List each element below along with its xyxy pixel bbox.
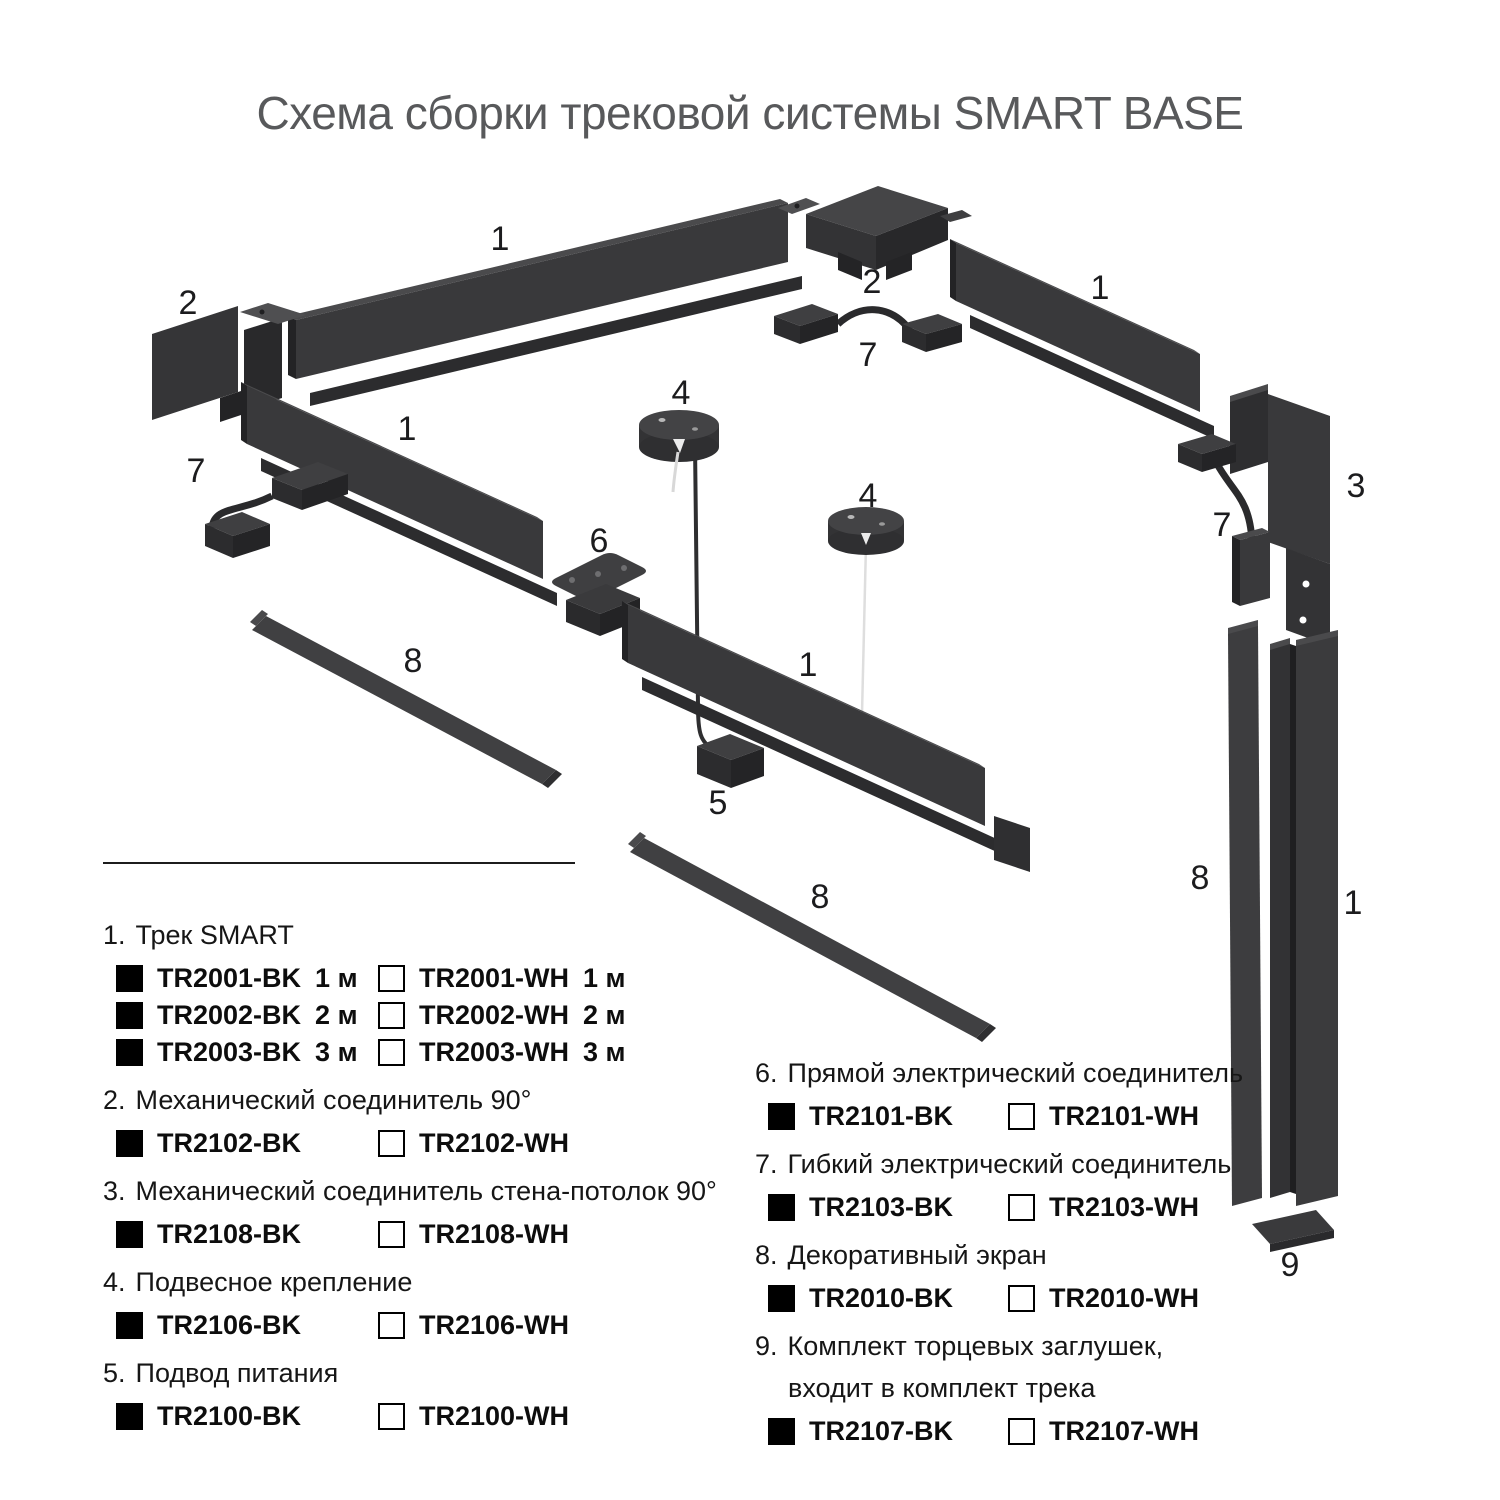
legend-item-wall-ceiling-connector: 3.Механический соединитель стена-потолок… [103, 1174, 688, 1253]
white-color-swatch [378, 1039, 405, 1066]
black-color-swatch [116, 1002, 143, 1029]
product-code-wh: TR2108-WH [419, 1219, 569, 1250]
black-color-swatch [116, 1130, 143, 1157]
black-color-swatch [768, 1418, 795, 1445]
black-color-swatch [116, 1221, 143, 1248]
product-code-bk: TR2003-BK [157, 1037, 301, 1068]
legend-item-title: 8.Декоративный экран [755, 1238, 1255, 1272]
product-code-wh: TR2100-WH [419, 1401, 569, 1432]
product-code-bk: TR2101-BK [809, 1101, 953, 1132]
product-code-bk: TR2001-BK [157, 963, 301, 994]
part-number-label: 6 [590, 522, 609, 560]
product-code-bk: TR2106-BK [157, 1310, 301, 1341]
legend-item-title-line2: входит в комплект трека [788, 1371, 1255, 1405]
product-code-wh: TR2103-WH [1049, 1192, 1199, 1223]
legend-item-title: 2.Механический соединитель 90° [103, 1083, 688, 1117]
black-color-swatch [116, 965, 143, 992]
part-number-label: 7 [187, 452, 206, 490]
product-row: TR2001-BK1 м TR2001-WH1 м [103, 960, 688, 997]
track-right-diagonal [950, 239, 1214, 439]
decorative-screen-left [250, 610, 562, 788]
product-row: TR2003-BK3 м TR2003-WH3 м [103, 1034, 688, 1071]
legend-item-title: 3.Механический соединитель стена-потолок… [103, 1174, 688, 1208]
product-row: TR2108-BK TR2108-WH [103, 1216, 688, 1253]
product-code-wh: TR2102-WH [419, 1128, 569, 1159]
product-code-wh: TR2001-WH [419, 963, 569, 994]
black-color-swatch [116, 1312, 143, 1339]
legend-item-straight-connector: 6.Прямой электрический соединитель TR210… [755, 1056, 1255, 1135]
product-row: TR2103-BK TR2103-WH [755, 1189, 1255, 1226]
product-code-wh: TR2010-WH [1049, 1283, 1199, 1314]
white-color-swatch [378, 1403, 405, 1430]
product-row: TR2010-BK TR2010-WH [755, 1280, 1255, 1317]
black-color-swatch [768, 1103, 795, 1130]
part-number-label: 1 [799, 646, 818, 684]
product-row: TR2100-BK TR2100-WH [103, 1398, 688, 1435]
product-row: TR2002-BK2 м TR2002-WH2 м [103, 997, 688, 1034]
part-number-label: 2 [863, 263, 882, 301]
divider-line [103, 862, 575, 864]
product-code-bk: TR2107-BK [809, 1416, 953, 1447]
part-number-label: 1 [1344, 884, 1363, 922]
product-row: TR2101-BK TR2101-WH [755, 1098, 1255, 1135]
length-label: 2 м [315, 1000, 358, 1031]
part-number-label: 4 [859, 477, 878, 515]
white-color-swatch [378, 1002, 405, 1029]
white-color-swatch [1008, 1418, 1035, 1445]
product-row: TR2102-BK TR2102-WH [103, 1125, 688, 1162]
legend-item-flex-connector: 7.Гибкий электрический соединитель TR210… [755, 1147, 1255, 1226]
part-number-label: 1 [398, 410, 417, 448]
length-label: 2 м [583, 1000, 626, 1031]
legend-item-title: 4.Подвесное крепление [103, 1265, 688, 1299]
legend-left-column: 1.Трек SMART TR2001-BK1 м TR2001-WH1 м T… [103, 862, 688, 1447]
length-label: 3 м [583, 1037, 626, 1068]
legend-right-column: 6.Прямой электрический соединитель TR210… [755, 1056, 1255, 1462]
part-number-label: 3 [1347, 467, 1366, 505]
part-number-label: 5 [709, 784, 728, 822]
part-number-label: 8 [404, 642, 423, 680]
black-color-swatch [116, 1403, 143, 1430]
legend-item-suspension: 4.Подвесное крепление TR2106-BK TR2106-W… [103, 1265, 688, 1344]
white-color-swatch [378, 1221, 405, 1248]
product-code-bk: TR2010-BK [809, 1283, 953, 1314]
white-color-swatch [1008, 1103, 1035, 1130]
legend-item-title: 6.Прямой электрический соединитель [755, 1056, 1255, 1090]
legend-item-title: 5.Подвод питания [103, 1356, 688, 1390]
legend-item-end-caps: 9.Комплект торцевых заглушек, входит в к… [755, 1329, 1255, 1450]
white-color-swatch [378, 1130, 405, 1157]
legend-item-power-feed: 5.Подвод питания TR2100-BK TR2100-WH [103, 1356, 688, 1435]
part-number-label: 4 [672, 374, 691, 412]
black-color-swatch [116, 1039, 143, 1066]
part-number-label: 1 [491, 220, 510, 258]
part-number-label: 8 [811, 878, 830, 916]
white-color-swatch [1008, 1285, 1035, 1312]
product-code-wh: TR2003-WH [419, 1037, 569, 1068]
length-label: 1 м [583, 963, 626, 994]
product-code-bk: TR2100-BK [157, 1401, 301, 1432]
product-row: TR2106-BK TR2106-WH [103, 1307, 688, 1344]
pendant-wire-light [862, 544, 866, 714]
white-color-swatch [378, 965, 405, 992]
part-number-label: 2 [179, 284, 198, 322]
product-code-bk: TR2103-BK [809, 1192, 953, 1223]
product-row: TR2107-BK TR2107-WH [755, 1413, 1255, 1450]
black-color-swatch [768, 1194, 795, 1221]
product-code-wh: TR2106-WH [419, 1310, 569, 1341]
legend-item-decorative-screen: 8.Декоративный экран TR2010-BK TR2010-WH [755, 1238, 1255, 1317]
product-code-bk: TR2002-BK [157, 1000, 301, 1031]
legend-item-corner-connector: 2.Механический соединитель 90° TR2102-BK… [103, 1083, 688, 1162]
track-top-left [288, 199, 802, 406]
white-color-swatch [378, 1312, 405, 1339]
part-number-label: 8 [1191, 859, 1210, 897]
product-code-bk: TR2102-BK [157, 1128, 301, 1159]
track-middle [622, 601, 1030, 872]
white-color-swatch [1008, 1194, 1035, 1221]
track-vertical [1270, 630, 1338, 1206]
length-label: 3 м [315, 1037, 358, 1068]
legend-item-title: 1.Трек SMART [103, 918, 688, 952]
part-number-label: 7 [859, 336, 878, 374]
product-code-wh: TR2107-WH [1049, 1416, 1199, 1447]
product-code-wh: TR2101-WH [1049, 1101, 1199, 1132]
length-label: 1 м [315, 963, 358, 994]
legend-item-track: 1.Трек SMART TR2001-BK1 м TR2001-WH1 м T… [103, 918, 688, 1071]
part-number-label: 7 [1213, 506, 1232, 544]
product-code-bk: TR2108-BK [157, 1219, 301, 1250]
product-code-wh: TR2002-WH [419, 1000, 569, 1031]
legend-item-title: 9.Комплект торцевых заглушек, [755, 1329, 1255, 1363]
legend-item-title: 7.Гибкий электрический соединитель [755, 1147, 1255, 1181]
black-color-swatch [768, 1285, 795, 1312]
part-number-label: 9 [1281, 1246, 1300, 1284]
part-number-label: 1 [1091, 269, 1110, 307]
suspension-canopy-1 [639, 410, 719, 492]
